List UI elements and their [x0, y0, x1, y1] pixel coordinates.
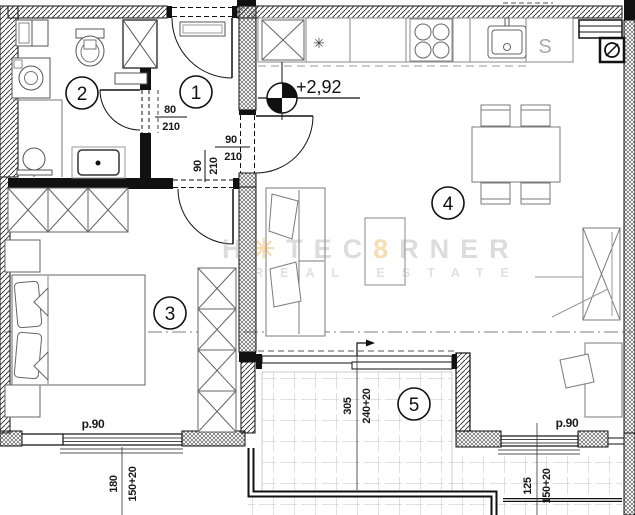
shower-tray-icon — [72, 147, 125, 178]
balcony-door — [256, 340, 457, 370]
room-badge-3: 3 — [154, 297, 186, 329]
hall-shelf — [115, 73, 147, 84]
terrace-tiles-bottom — [248, 498, 494, 515]
floor-plan-canvas: +2,92 80 210 90 210 90 210 305 240+20 18… — [0, 0, 635, 515]
room-number: 1 — [191, 83, 202, 104]
dim-value: 90 — [192, 160, 204, 172]
center-wall-cap1 — [239, 110, 256, 115]
dim-value: 125 — [522, 477, 534, 495]
dining-set — [472, 105, 560, 204]
watermark-line2: REAL ESTATE — [254, 266, 526, 280]
washing-machine-icon — [12, 58, 50, 98]
dim-living-door: 90 210 — [215, 134, 250, 163]
parapet-label-living: p.90 — [556, 416, 579, 430]
dim-bedroom-door: 90 210 — [192, 150, 220, 182]
living-wardrobe — [535, 228, 620, 320]
room-number: 4 — [443, 194, 454, 215]
wall-top-right — [237, 6, 622, 18]
dim-bedroom-window: 180 150+20 — [108, 466, 139, 501]
bedroom-partition-wall — [8, 178, 173, 189]
level-marker: +2,92 — [258, 62, 360, 120]
nightstand-top — [5, 240, 40, 272]
dim-value: 210 — [162, 121, 180, 133]
watermark-line1: H✳TEC8RNER — [222, 234, 520, 264]
parapet-label-bedroom: p.90 — [82, 417, 105, 431]
center-wall-upper — [239, 6, 256, 110]
entrance-door — [172, 8, 232, 79]
bedroom-wardrobe-right — [198, 268, 236, 432]
living-door — [241, 115, 314, 173]
bath-cabinet-icon — [16, 20, 48, 46]
dim-value: 150+20 — [541, 468, 553, 503]
room-badge-4: 4 — [432, 187, 464, 219]
boiler-icon — [579, 20, 624, 62]
wall-right — [624, 20, 635, 433]
watermark-amp-icon: 8 — [373, 234, 399, 264]
fridge-symbol: ✳ — [313, 35, 325, 51]
level-value: +2,92 — [296, 77, 342, 97]
center-wall-top-cap — [237, 0, 256, 6]
balcony-pier-left — [241, 362, 255, 433]
room-badge-1: 1 — [180, 76, 212, 108]
dim-value: 210 — [224, 151, 242, 163]
room-number: 5 — [409, 395, 420, 416]
floor-plan: +2,92 80 210 90 210 90 210 305 240+20 18… — [0, 0, 635, 515]
wall-top-left — [8, 6, 167, 18]
nightstand-bottom — [5, 385, 40, 417]
room-number: 3 — [165, 304, 176, 325]
wall-right-lower — [624, 433, 635, 515]
balcony-pier-right — [456, 353, 470, 431]
wall-right-cap — [624, 0, 635, 20]
cooktop-icon — [410, 19, 452, 61]
dim-value: 305 — [342, 397, 354, 415]
washbasin-icon — [17, 148, 52, 177]
bed-icon — [12, 275, 145, 385]
slide-direction-arrow — [357, 340, 375, 357]
entry-closet — [180, 22, 225, 36]
entrance-jamb-right — [232, 6, 237, 18]
center-wall-cap2 — [239, 352, 256, 362]
living-window — [456, 431, 624, 454]
sink-icon — [488, 18, 526, 58]
dim-value: 150+20 — [127, 466, 139, 501]
room-badge-5: 5 — [398, 388, 430, 420]
dim-value: 240+20 — [361, 388, 373, 423]
bedroom-furniture — [5, 188, 236, 432]
watermark-star-icon: ✳ — [253, 234, 287, 264]
shaft-cabinet-icon — [262, 20, 304, 60]
dim-value: 90 — [225, 134, 237, 146]
dim-value: 210 — [208, 157, 220, 175]
watermark: H✳TEC8RNER REAL ESTATE — [222, 234, 526, 280]
room-number: 2 — [77, 84, 88, 105]
bath-wall-lower — [140, 133, 151, 178]
entrance-jamb-left — [167, 6, 172, 18]
sink-label: S — [538, 36, 551, 58]
toilet-icon — [76, 29, 104, 66]
center-wall-mid — [239, 173, 256, 187]
room-badge-2: 2 — [66, 77, 98, 109]
hall-furniture — [115, 20, 225, 84]
bedroom-door-stub — [233, 178, 239, 189]
dim-value: 180 — [108, 475, 120, 493]
dim-bath-door: 80 210 — [155, 104, 187, 133]
bathroom-door — [100, 90, 158, 133]
bedroom-window — [0, 431, 245, 453]
bedroom-wardrobe-top — [8, 188, 128, 232]
hall-shaft-icon — [123, 20, 157, 68]
dim-value: 80 — [164, 104, 176, 116]
